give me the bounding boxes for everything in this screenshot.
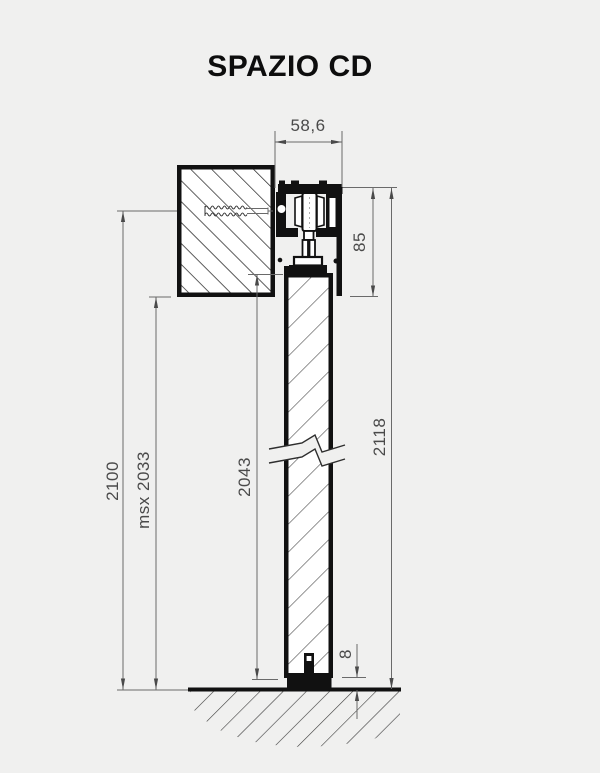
floor-line bbox=[188, 688, 401, 692]
dim-mechanism-height: 85 bbox=[343, 188, 398, 297]
dim-opening-height: 2100 bbox=[103, 211, 188, 690]
dim-label-total-height: 2118 bbox=[370, 418, 389, 457]
drawing-page: SPAZIO CD bbox=[0, 0, 600, 773]
dim-door-height: 2043 bbox=[235, 275, 283, 680]
page-title: SPAZIO CD bbox=[207, 50, 373, 83]
dim-label-floor-gap: 8 bbox=[336, 649, 355, 659]
dim-label-max-height: msx 2033 bbox=[134, 451, 153, 529]
ground-hatch bbox=[190, 691, 400, 747]
dim-track-width: 58,6 bbox=[275, 116, 342, 188]
dim-label-track-width: 58,6 bbox=[290, 116, 325, 135]
hanger-bracket bbox=[278, 231, 327, 277]
dim-total-height: 2118 bbox=[370, 188, 394, 689]
dim-max-height: msx 2033 bbox=[134, 297, 171, 690]
dim-label-mechanism-height: 85 bbox=[350, 232, 369, 252]
dim-label-opening-height: 2100 bbox=[103, 461, 122, 501]
technical-drawing-canvas: SPAZIO CD bbox=[0, 0, 600, 773]
door-panel bbox=[284, 273, 333, 678]
fixing-hole bbox=[278, 205, 286, 213]
wall-section bbox=[177, 165, 275, 297]
dim-label-door-height: 2043 bbox=[235, 457, 254, 497]
roller-carriage bbox=[295, 193, 324, 231]
